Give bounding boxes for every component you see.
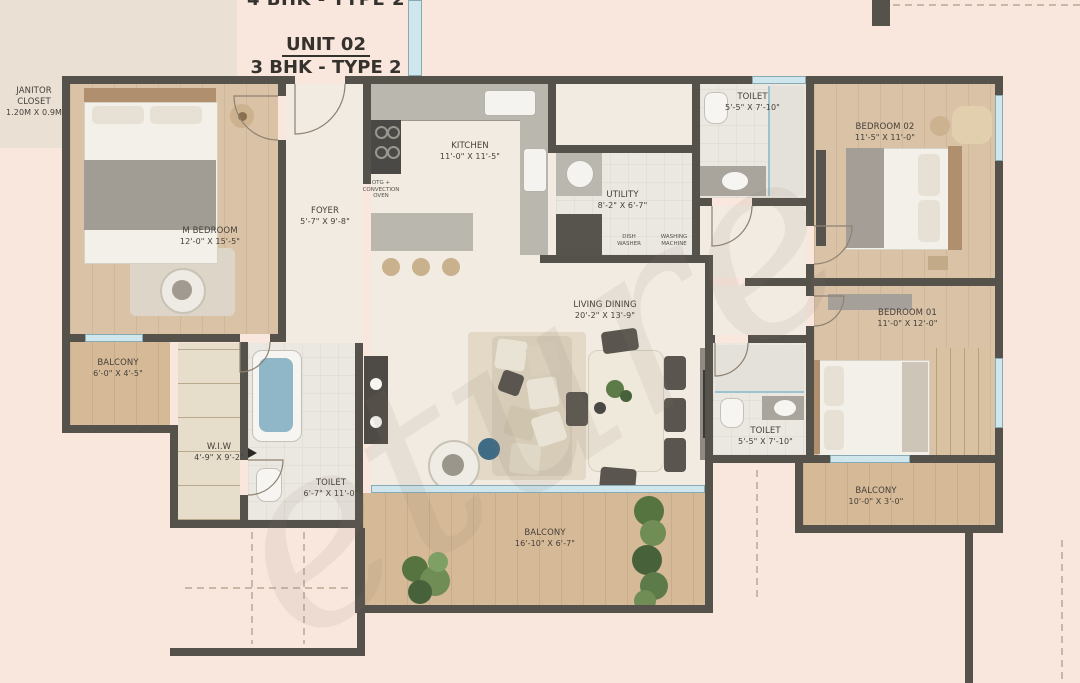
room-dims: 5'-5" X 7'-10": [718, 437, 813, 447]
room-dims: 5'-5" X 7'-10": [705, 103, 800, 113]
room-dims: 11'-5" X 11'-0": [825, 133, 945, 143]
floor-plan: JANITOR CLOSET 1.20M X 0.9M M BEDROOM 12…: [0, 0, 1080, 683]
toilet-right-label: TOILET 5'-5" X 7'-10": [718, 426, 813, 447]
kitchen-label: KITCHEN 11'-0" X 11'-5": [420, 141, 520, 162]
washing-machine-label: WASHING MACHINE: [652, 234, 696, 247]
bedroom02-label: BEDROOM 02 11'-5" X 11'-0": [825, 122, 945, 143]
oven-label: OTG + CONVECTION OVEN: [360, 180, 402, 200]
wiw-label: W.I.W 4'-9" X 9'-2": [188, 442, 250, 463]
janitor-label: JANITOR CLOSET 1.20M X 0.9M: [2, 86, 66, 118]
room-name: TOILET: [705, 92, 800, 103]
adjacent-unit-title: 4 BHK - TYPE 2: [238, 0, 414, 10]
room-name: BALCONY: [820, 486, 932, 497]
room-dims: 20'-2" X 13'-9": [545, 311, 665, 321]
toilet-bottom-label: TOILET 6'-7" X 11'-0": [286, 478, 376, 499]
living-dining-label: LIVING DINING 20'-2" X 13'-9": [545, 300, 665, 321]
balcony-left-label: BALCONY 6'-0" X 4'-5": [74, 358, 162, 379]
room-name: TOILET: [286, 478, 376, 489]
room-dims: 8'-2" X 6'-7": [575, 201, 670, 211]
room-name: KITCHEN: [420, 141, 520, 152]
unit-type: 3 BHK - TYPE 2: [238, 57, 414, 78]
room-name: BEDROOM 02: [825, 122, 945, 133]
room-dims: 4'-9" X 9'-2": [188, 453, 250, 463]
room-name: TOILET: [718, 426, 813, 437]
room-dims: 16'-10" X 6'-7": [490, 539, 600, 549]
toilet-top-label: TOILET 5'-5" X 7'-10": [705, 92, 800, 113]
room-dims: 5'-7" X 9'-8": [285, 217, 365, 227]
room-dims: 11'-0" X 12'-0": [845, 319, 970, 329]
room-name: BALCONY: [74, 358, 162, 369]
utility-label: UTILITY 8'-2" X 6'-7": [575, 190, 670, 211]
room-name: UTILITY: [575, 190, 670, 201]
room-dims: 11'-0" X 11'-5": [420, 152, 520, 162]
room-name: BALCONY: [490, 528, 600, 539]
room-dims: 1.20M X 0.9M: [2, 108, 66, 118]
balcony-right-label: BALCONY 10'-0" X 3'-0": [820, 486, 932, 507]
bedroom01-label: BEDROOM 01 11'-0" X 12'-0": [845, 308, 970, 329]
room-dims: 12'-0" X 15'-5": [150, 237, 270, 247]
m-bedroom-label: M BEDROOM 12'-0" X 15'-5": [150, 226, 270, 247]
room-dims: 6'-0" X 4'-5": [74, 369, 162, 379]
room-name: BEDROOM 01: [845, 308, 970, 319]
room-name: LIVING DINING: [545, 300, 665, 311]
room-dims: 6'-7" X 11'-0": [286, 489, 376, 499]
dish-washer-label: DISH WASHER: [610, 234, 648, 247]
room-name: JANITOR CLOSET: [2, 86, 66, 108]
room-dims: 10'-0" X 3'-0": [820, 497, 932, 507]
foyer-label: FOYER 5'-7" X 9'-8": [285, 206, 365, 227]
unit-number: UNIT 02: [282, 34, 370, 57]
balcony-bottom-label: BALCONY 16'-10" X 6'-7": [490, 528, 600, 549]
room-name: FOYER: [285, 206, 365, 217]
room-name: W.I.W: [188, 442, 250, 453]
room-name: M BEDROOM: [150, 226, 270, 237]
door-swing-overlay: [0, 0, 1080, 683]
wiw-arrow-icon: [248, 448, 257, 458]
